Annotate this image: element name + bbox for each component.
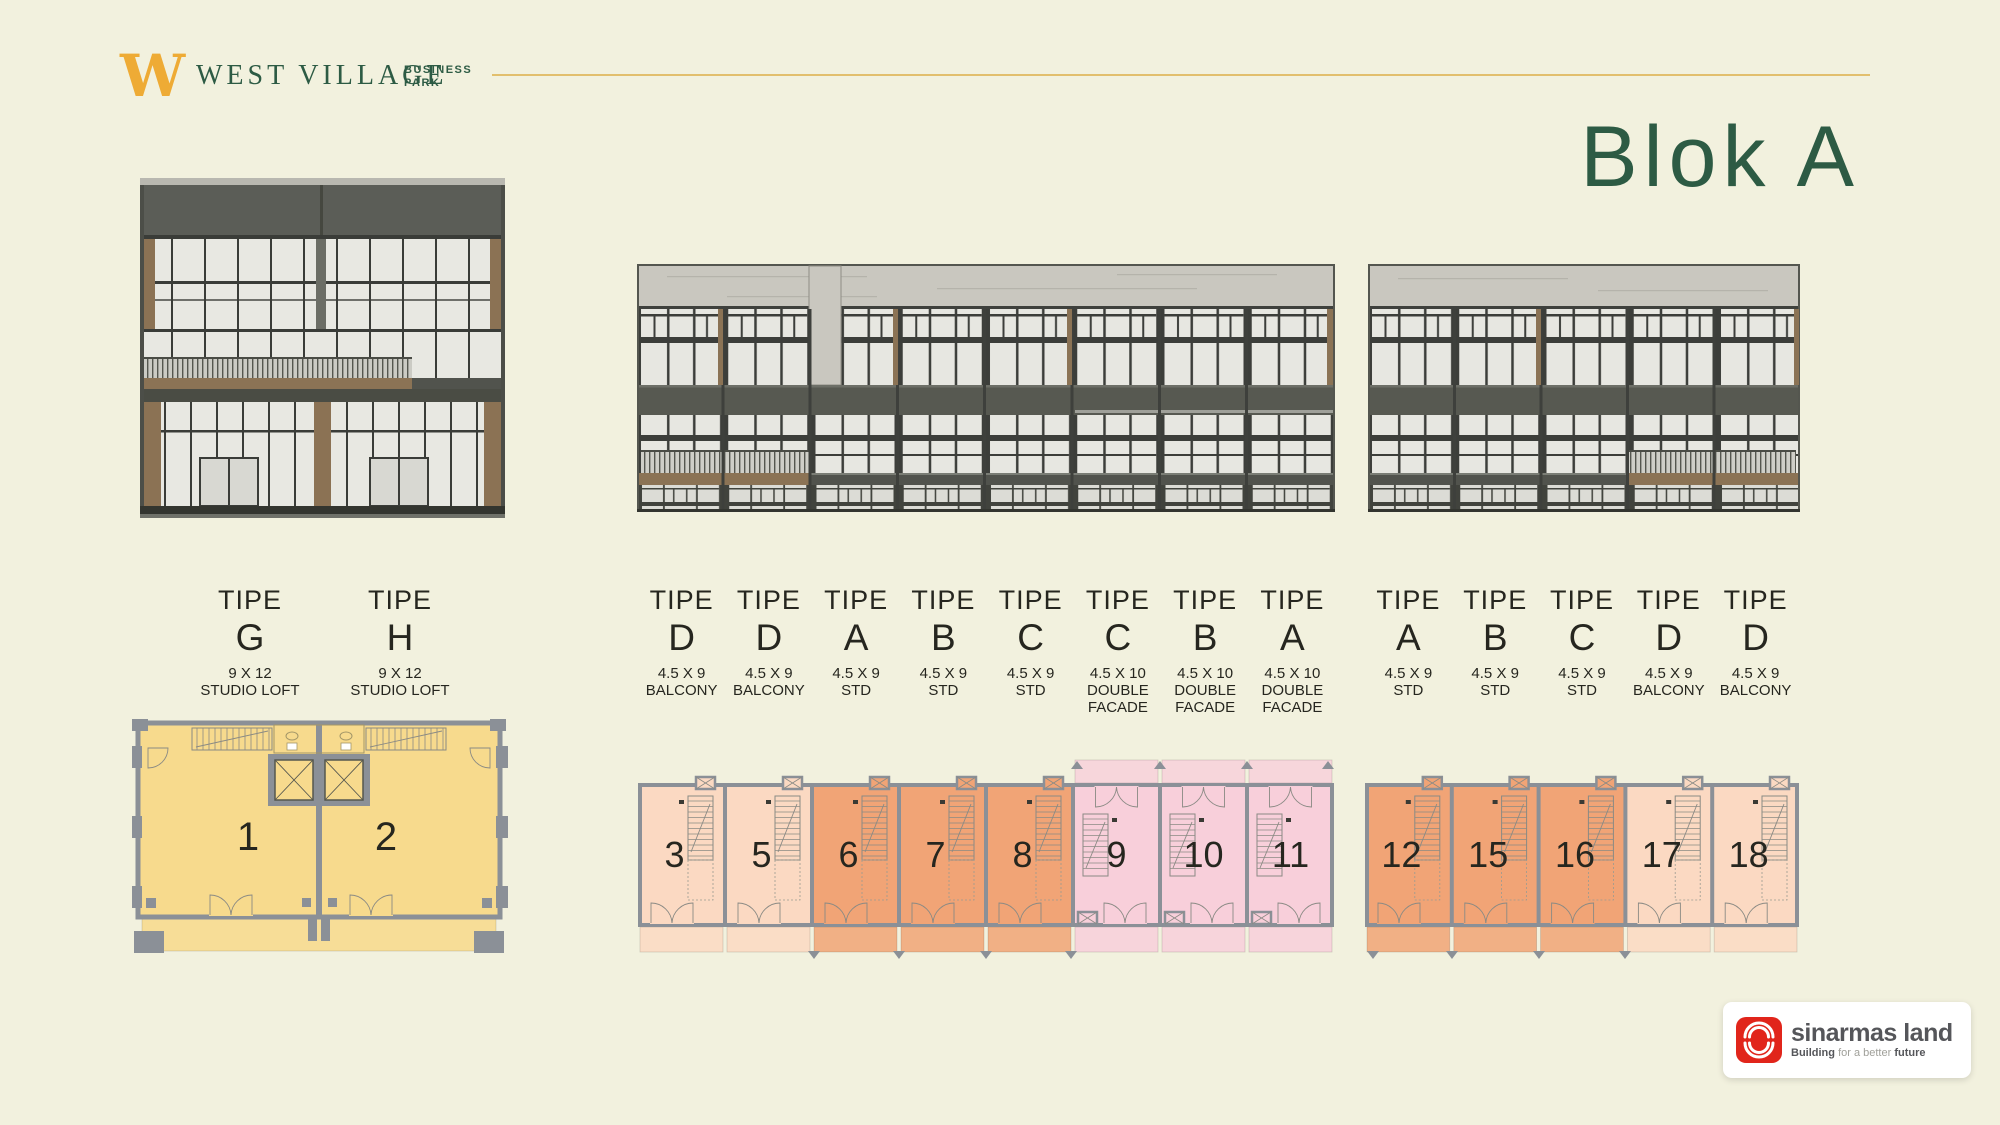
tipe-desc: BALCONY bbox=[1625, 682, 1712, 699]
tipe-letter: A bbox=[1249, 618, 1336, 658]
floorplan-studio-loft: 12 bbox=[132, 718, 512, 958]
type-labels-right-block: TIPEA4.5 X 9STDTIPEB4.5 X 9STDTIPEC4.5 X… bbox=[1365, 585, 1799, 699]
sinarmas-tagline: Building for a better future bbox=[1791, 1047, 1953, 1059]
sinarmas-icon bbox=[1736, 1017, 1782, 1063]
tipe-size: 4.5 X 9 bbox=[1452, 665, 1539, 682]
tipe-letter: D bbox=[638, 618, 725, 658]
tipe-size: 4.5 X 9 bbox=[1625, 665, 1712, 682]
tipe-word: TIPE bbox=[1162, 585, 1249, 616]
type-label-right-1-B: TIPEB4.5 X 9STD bbox=[1452, 585, 1539, 699]
tipe-letter: G bbox=[175, 618, 325, 658]
brand-subtitle-line2: PARK bbox=[404, 77, 472, 90]
tipe-size: 4.5 X 10 bbox=[1074, 665, 1161, 682]
type-label-left-1-H: TIPEH9 X 12STUDIO LOFT bbox=[325, 585, 475, 699]
header-divider bbox=[492, 74, 1870, 76]
tipe-word: TIPE bbox=[813, 585, 900, 616]
tipe-word: TIPE bbox=[1712, 585, 1799, 616]
tipe-size: 9 X 12 bbox=[325, 665, 475, 682]
type-label-middle-2-A: TIPEA4.5 X 9STD bbox=[813, 585, 900, 716]
unit-number-11: 11 bbox=[1272, 834, 1309, 875]
tipe-desc: DOUBLE FACADE bbox=[1074, 682, 1161, 716]
tipe-size: 9 X 12 bbox=[175, 665, 325, 682]
tipe-word: TIPE bbox=[1452, 585, 1539, 616]
unit-number-17: 17 bbox=[1642, 834, 1682, 875]
tipe-word: TIPE bbox=[175, 585, 325, 616]
tipe-word: TIPE bbox=[1539, 585, 1626, 616]
type-label-middle-7-A: TIPEA4.5 X 10DOUBLE FACADE bbox=[1249, 585, 1336, 716]
unit-number-16: 16 bbox=[1555, 834, 1595, 875]
tipe-word: TIPE bbox=[1074, 585, 1161, 616]
brochure-slide: W WEST VILLAGE BUSINESS PARK Blok A bbox=[0, 0, 2000, 1125]
type-labels-left-block: TIPEG9 X 12STUDIO LOFTTIPEH9 X 12STUDIO … bbox=[175, 585, 475, 699]
floorplan-left-block: 12 bbox=[132, 718, 512, 963]
tipe-size: 4.5 X 9 bbox=[725, 665, 812, 682]
tipe-desc: STD bbox=[900, 682, 987, 699]
tipe-size: 4.5 X 10 bbox=[1162, 665, 1249, 682]
unit-number-5: 5 bbox=[751, 834, 771, 875]
tipe-desc: DOUBLE FACADE bbox=[1162, 682, 1249, 716]
type-label-middle-0-D: TIPED4.5 X 9BALCONY bbox=[638, 585, 725, 716]
tipe-word: TIPE bbox=[325, 585, 475, 616]
tipe-word: TIPE bbox=[725, 585, 812, 616]
type-label-right-0-A: TIPEA4.5 X 9STD bbox=[1365, 585, 1452, 699]
tipe-letter: A bbox=[1365, 618, 1452, 658]
unit-number-1: 1 bbox=[237, 815, 259, 859]
floorplan-right-block: 1215161718 bbox=[1365, 756, 1799, 965]
tipe-letter: B bbox=[1452, 618, 1539, 658]
page-title: Blok A bbox=[1400, 108, 1860, 207]
tipe-letter: D bbox=[725, 618, 812, 658]
type-label-middle-3-B: TIPEB4.5 X 9STD bbox=[900, 585, 987, 716]
tipe-letter: B bbox=[900, 618, 987, 658]
type-label-middle-5-C: TIPEC4.5 X 10DOUBLE FACADE bbox=[1074, 585, 1161, 716]
tipe-word: TIPE bbox=[1625, 585, 1712, 616]
tipe-desc: DOUBLE FACADE bbox=[1249, 682, 1336, 716]
sinarmas-name: sinarmas land bbox=[1791, 1021, 1953, 1046]
unit-number-12: 12 bbox=[1381, 834, 1421, 875]
type-labels-middle-block: TIPED4.5 X 9BALCONYTIPED4.5 X 9BALCONYTI… bbox=[638, 585, 1336, 716]
tipe-desc: BALCONY bbox=[1712, 682, 1799, 699]
unit-number-8: 8 bbox=[1012, 834, 1032, 875]
unit-number-15: 15 bbox=[1468, 834, 1508, 875]
tipe-letter: D bbox=[1712, 618, 1799, 658]
tipe-size: 4.5 X 10 bbox=[1249, 665, 1336, 682]
type-label-right-4-D: TIPED4.5 X 9BALCONY bbox=[1712, 585, 1799, 699]
left-building-elevation bbox=[140, 178, 505, 518]
tipe-letter: D bbox=[1625, 618, 1712, 658]
tipe-size: 4.5 X 9 bbox=[1712, 665, 1799, 682]
tipe-desc: STUDIO LOFT bbox=[325, 682, 475, 699]
tipe-letter: C bbox=[1074, 618, 1161, 658]
tipe-desc: STD bbox=[987, 682, 1074, 699]
middle-building-elevation bbox=[637, 264, 1335, 512]
type-label-right-2-C: TIPEC4.5 X 9STD bbox=[1539, 585, 1626, 699]
tipe-word: TIPE bbox=[987, 585, 1074, 616]
tipe-size: 4.5 X 9 bbox=[1539, 665, 1626, 682]
unit-number-3: 3 bbox=[664, 834, 684, 875]
tipe-word: TIPE bbox=[1249, 585, 1336, 616]
brand-subtitle: BUSINESS PARK bbox=[404, 64, 472, 90]
unit-number-7: 7 bbox=[925, 834, 945, 875]
tipe-size: 4.5 X 9 bbox=[1365, 665, 1452, 682]
tipe-size: 4.5 X 9 bbox=[987, 665, 1074, 682]
right-building-elevation bbox=[1368, 264, 1800, 512]
tipe-desc: BALCONY bbox=[638, 682, 725, 699]
tipe-size: 4.5 X 9 bbox=[813, 665, 900, 682]
floorplan-strip-right: 1215161718 bbox=[1365, 756, 1799, 960]
floorplan-strip-middle: 3567891011 bbox=[638, 756, 1334, 960]
tipe-size: 4.5 X 9 bbox=[638, 665, 725, 682]
tipe-word: TIPE bbox=[638, 585, 725, 616]
type-label-left-0-G: TIPEG9 X 12STUDIO LOFT bbox=[175, 585, 325, 699]
type-label-middle-4-C: TIPEC4.5 X 9STD bbox=[987, 585, 1074, 716]
tipe-desc: STD bbox=[1452, 682, 1539, 699]
type-label-middle-1-D: TIPED4.5 X 9BALCONY bbox=[725, 585, 812, 716]
type-label-right-3-D: TIPED4.5 X 9BALCONY bbox=[1625, 585, 1712, 699]
sinarmas-land-logo-card: sinarmas land Building for a better futu… bbox=[1723, 1002, 1971, 1078]
unit-number-10: 10 bbox=[1183, 834, 1223, 875]
west-village-logo-icon: W bbox=[120, 46, 182, 106]
tipe-letter: A bbox=[813, 618, 900, 658]
tipe-desc: BALCONY bbox=[725, 682, 812, 699]
tipe-letter: C bbox=[987, 618, 1074, 658]
tipe-size: 4.5 X 9 bbox=[900, 665, 987, 682]
tipe-letter: C bbox=[1539, 618, 1626, 658]
tipe-letter: B bbox=[1162, 618, 1249, 658]
tipe-letter: H bbox=[325, 618, 475, 658]
floorplan-middle-block: 3567891011 bbox=[638, 756, 1334, 965]
unit-number-2: 2 bbox=[375, 815, 397, 859]
tipe-desc: STUDIO LOFT bbox=[175, 682, 325, 699]
tipe-word: TIPE bbox=[1365, 585, 1452, 616]
tipe-word: TIPE bbox=[900, 585, 987, 616]
unit-number-18: 18 bbox=[1729, 834, 1769, 875]
unit-number-9: 9 bbox=[1106, 834, 1126, 875]
unit-number-6: 6 bbox=[838, 834, 858, 875]
tipe-desc: STD bbox=[1539, 682, 1626, 699]
type-label-middle-6-B: TIPEB4.5 X 10DOUBLE FACADE bbox=[1162, 585, 1249, 716]
tipe-desc: STD bbox=[1365, 682, 1452, 699]
brand-subtitle-line1: BUSINESS bbox=[404, 64, 472, 77]
tipe-desc: STD bbox=[813, 682, 900, 699]
